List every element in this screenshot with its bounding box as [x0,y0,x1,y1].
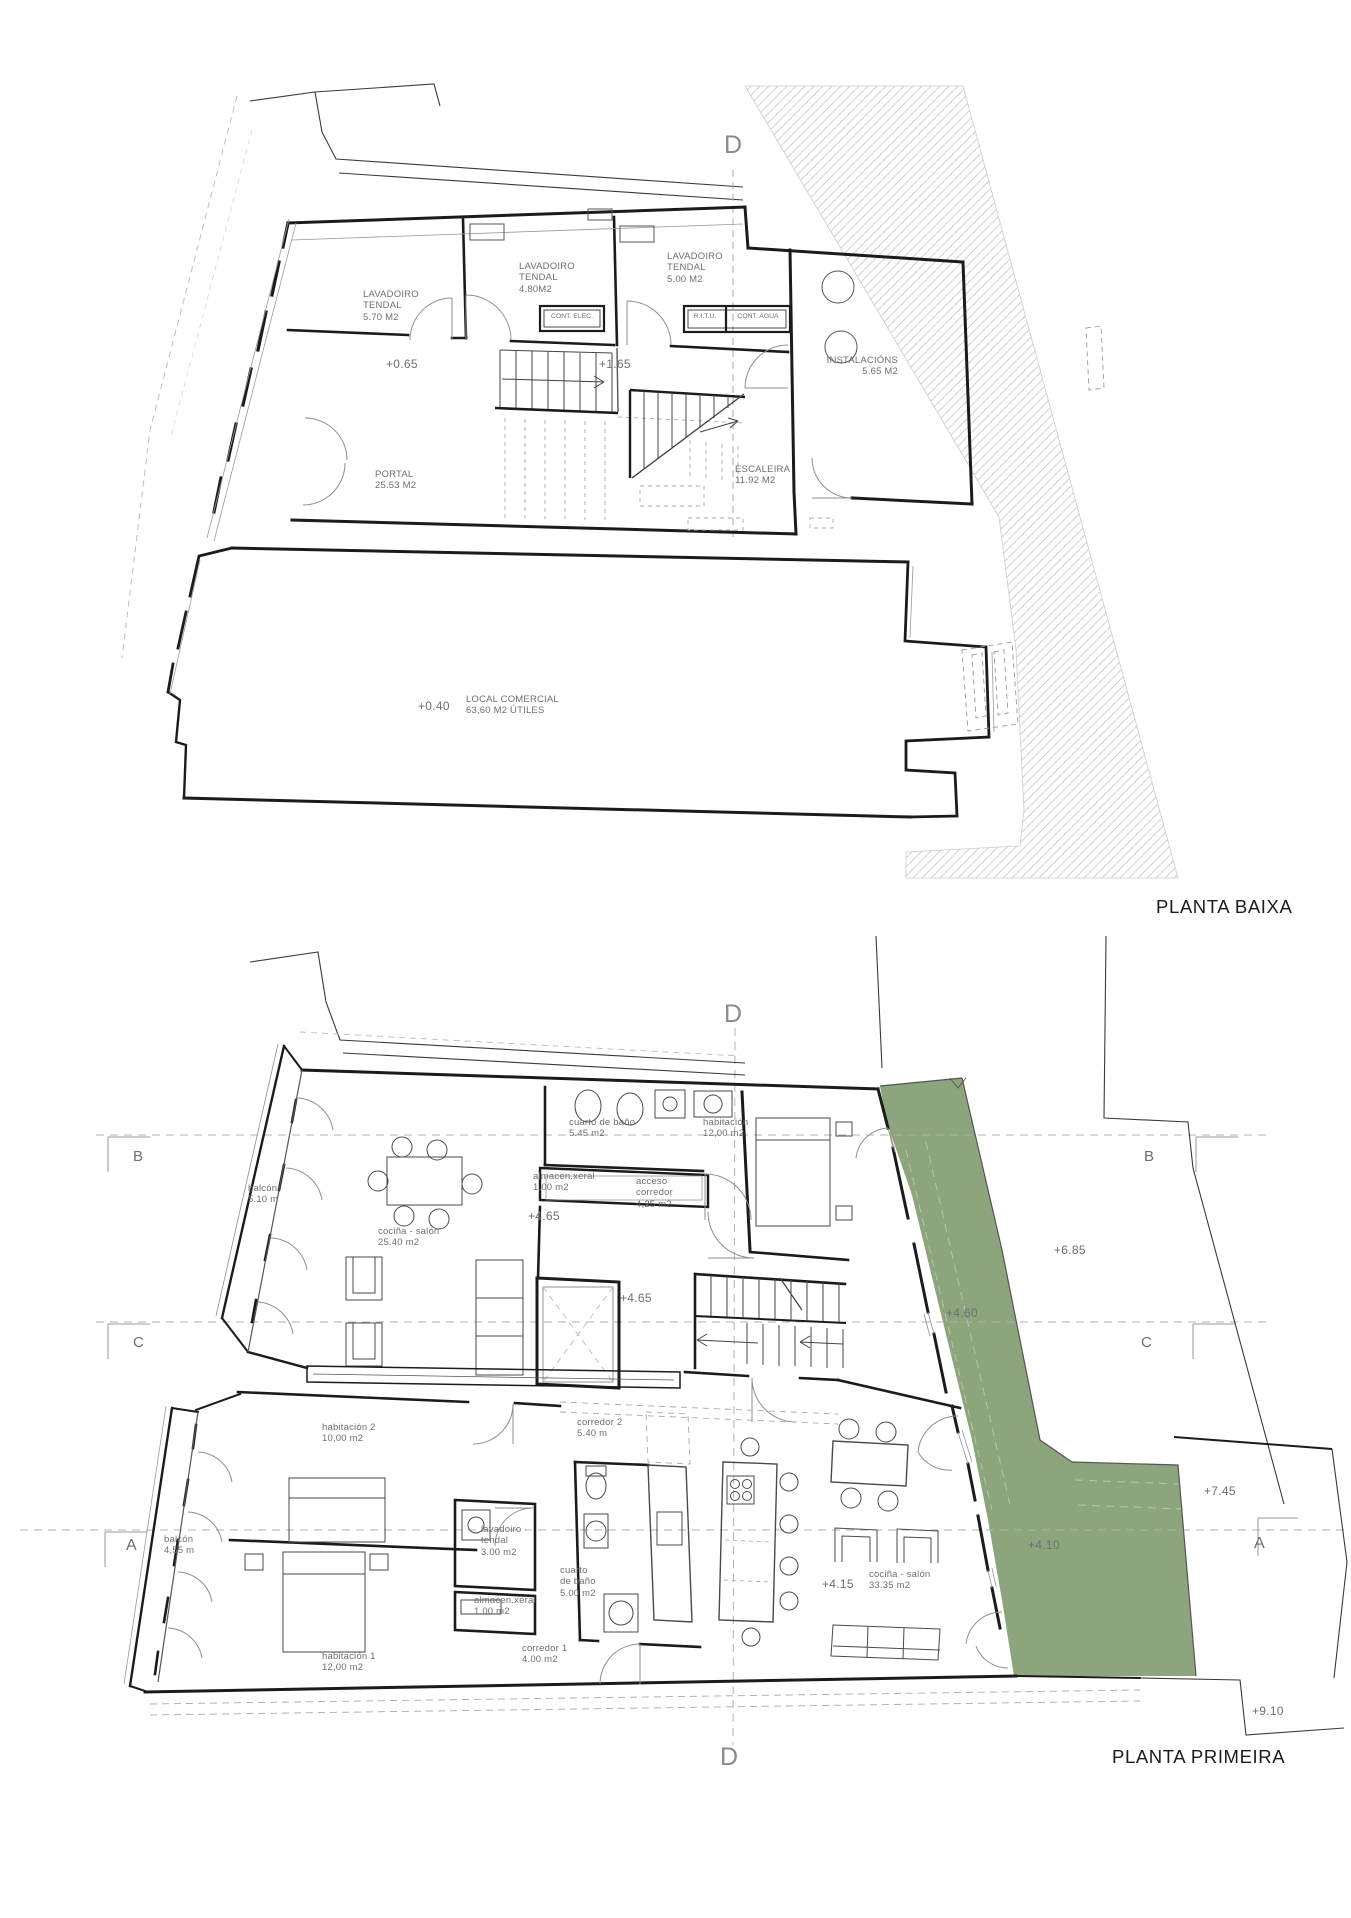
grid-label-c-left: C [133,1334,144,1352]
level-mark-685: +6.85 [1054,1243,1086,1257]
room-label-corredor-2: corredor 2 5.40 m [577,1417,622,1440]
room-label-almacen-upper: almacen.xeral 1,00 m2 [533,1171,595,1194]
room-label-local-comercial: LOCAL COMERCIAL 63,60 M2 ÚTILES [466,694,559,717]
room-label-lavadoiro-2: LAVADOIRO TENDAL 4.80M2 [519,261,575,295]
room-label-habitacion-1: habitación 1 12,00 m2 [322,1651,376,1674]
room-label-acceso-corredor: acceso corredor 4,25 m2 [636,1176,673,1210]
neighbor-parcel-hatch [745,86,1178,878]
room-label-escaleira: ESCALEIRA 11.92 M2 [735,464,790,487]
level-mark-165: +1.65 [599,357,631,371]
section-marker-d-baixa: D [724,130,742,160]
room-label-habitacion-2: habitación 2 10,00 m2 [322,1422,376,1445]
room-label-instalacions: INSTALACIÓNS 5.65 M2 [788,355,898,378]
meter-box-label-cont-elec: CONT. ELEC. [540,313,604,321]
grid-label-c-right: C [1141,1334,1152,1352]
grid-label-b-left: B [133,1148,143,1166]
level-mark-410: +4.10 [1028,1538,1060,1552]
grid-label-a-right: A [1254,1534,1265,1553]
level-mark-465-a: +4.65 [528,1209,560,1223]
plan-title-baixa: PLANTA BAIXA [1156,896,1292,918]
floor-plan-drawing [0,0,1351,1918]
room-label-portal: PORTAL 25.53 M2 [375,469,416,492]
drawing-sheet: D LAVADOIRO TENDAL 5.70 M2 LAVADOIRO TEN… [0,0,1351,1918]
level-mark-465-b: +4.65 [620,1291,652,1305]
room-label-cocina-salon-lower: cociña - salón 33.35 m2 [869,1569,930,1592]
room-label-almacen-lower: almacen.xeral 1.00 m2 [474,1595,536,1618]
level-mark-040: +0.40 [418,699,450,713]
level-mark-415: +4.15 [822,1577,854,1591]
room-label-lavadoiro-3: LAVADOIRO TENDAL 5,00 M2 [667,251,723,285]
meter-box-label-ritu: R.I.T.U. [684,313,726,321]
level-mark-460: +4.60 [946,1306,978,1320]
section-marker-d-top: D [724,999,742,1029]
room-label-corredor-1: corredor 1 4.00 m2 [522,1643,567,1666]
meter-box-label-cont-agua: CONT. AGUA [727,313,789,321]
grid-label-a-left: A [126,1536,137,1555]
grid-label-b-right: B [1144,1148,1154,1166]
room-label-cocina-salon-upper: cociña - salón 25.40 m2 [378,1226,439,1249]
level-mark-745: +7.45 [1204,1484,1236,1498]
plan-title-primeira: PLANTA PRIMEIRA [1112,1746,1285,1768]
room-label-lavadoiro-1: LAVADOIRO TENDAL 5.70 M2 [363,289,419,323]
room-label-balcon-upper: balcón 5.10 m [248,1183,278,1206]
room-label-balcon-lower: balcón 4,55 m [164,1534,194,1557]
room-label-habitacion-upper: habitación 12,00 m2 [703,1117,748,1140]
room-label-lavadoiro-tendal: lavadoiro tendal 3.00 m2 [481,1524,521,1558]
level-mark-065: +0.65 [386,357,418,371]
level-mark-910: +9.10 [1252,1704,1284,1718]
section-marker-d-bottom: D [720,1742,738,1772]
room-label-bano-upper: cuarto de baño 5.45 m2 [569,1117,635,1140]
room-label-bano-lower: cuarto de baño 5.00 m2 [560,1565,596,1599]
